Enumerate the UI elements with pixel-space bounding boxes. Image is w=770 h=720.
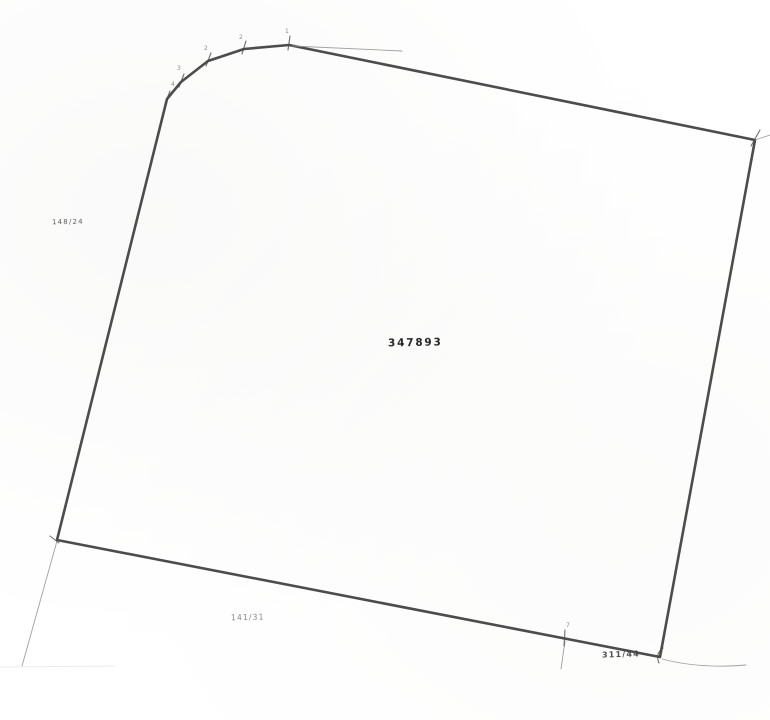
vertex-number-label: 2 [204, 45, 208, 52]
vertex-number-label: 7 [566, 622, 570, 629]
vertex-number-label: 4 [171, 81, 175, 88]
neighbor-parcel-number-left: 148/24 [52, 218, 84, 227]
parcel-boundary-drawing: 432217 [0, 0, 770, 720]
vertex-number-label: 2 [239, 34, 243, 41]
neighbor-parcel-number-bottom: 141/31 [231, 613, 265, 623]
cadastral-map-page: 148/24 347893 141/31 311/44 432217 [0, 0, 770, 720]
main-parcel-number: 347893 [388, 337, 443, 350]
vertex-number-label: 3 [177, 65, 181, 72]
vertex-number-label: 1 [285, 28, 289, 35]
neighbor-parcel-number-bottom-right: 311/44 [602, 649, 640, 659]
